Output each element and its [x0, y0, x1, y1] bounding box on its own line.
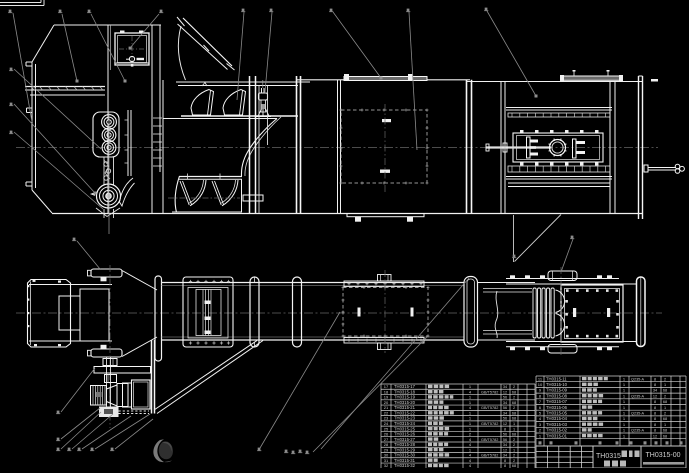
svg-text:2: 2: [513, 406, 515, 410]
svg-text:2: 2: [513, 454, 515, 458]
svg-text:68: 68: [663, 434, 667, 438]
svg-text:TH0315-06: TH0315-06: [546, 405, 568, 410]
svg-text:56: 56: [503, 396, 507, 400]
svg-text:22: 22: [384, 410, 389, 415]
svg-text:68: 68: [512, 411, 516, 415]
svg-text:TH0315-18: TH0315-18: [394, 389, 416, 394]
svg-text:TH0315-29: TH0315-29: [394, 447, 416, 452]
svg-text:2: 2: [513, 385, 515, 389]
svg-text:TH0315-07: TH0315-07: [546, 399, 568, 404]
svg-text:26: 26: [384, 432, 389, 437]
svg-text:8: 8: [654, 383, 656, 387]
svg-text:18: 18: [384, 389, 389, 394]
svg-text:68: 68: [663, 400, 667, 404]
svg-text:8: 8: [504, 464, 506, 468]
svg-text:TH0315-26: TH0315-26: [394, 432, 416, 437]
svg-text:21: 21: [384, 405, 389, 410]
svg-text:68: 68: [512, 401, 516, 405]
svg-text:68: 68: [512, 433, 516, 437]
svg-text:8: 8: [654, 417, 656, 421]
svg-text:12: 12: [653, 394, 657, 398]
svg-text:1: 1: [664, 406, 666, 410]
svg-text:34: 34: [503, 411, 507, 415]
svg-text:56: 56: [503, 417, 507, 421]
svg-text:TH0315-02: TH0315-02: [546, 428, 568, 433]
svg-text:56: 56: [503, 438, 507, 442]
svg-text:68: 68: [512, 417, 516, 421]
svg-text:TH0315-28: TH0315-28: [394, 442, 416, 447]
svg-text:TH0315-31: TH0315-31: [394, 458, 416, 463]
svg-text:TH0315-24: TH0315-24: [394, 421, 416, 426]
svg-text:TH0315-27: TH0315-27: [394, 437, 416, 442]
svg-text:Q235-A: Q235-A: [631, 394, 645, 398]
svg-text:68: 68: [512, 390, 516, 394]
svg-text:GB/T5782: GB/T5782: [481, 454, 498, 458]
svg-text:56: 56: [503, 406, 507, 410]
svg-text:2: 2: [664, 377, 666, 381]
svg-text:56: 56: [503, 433, 507, 437]
svg-text:1: 1: [664, 383, 666, 387]
svg-text:30: 30: [384, 453, 389, 458]
svg-text:8: 8: [654, 400, 656, 404]
svg-text:68: 68: [663, 417, 667, 421]
svg-text:12: 12: [503, 422, 507, 426]
svg-text:8: 8: [654, 429, 656, 433]
svg-text:8: 8: [504, 427, 506, 431]
svg-text:2: 2: [513, 443, 515, 447]
svg-text:TH0315-17: TH0315-17: [394, 384, 416, 389]
svg-text:17: 17: [384, 384, 389, 389]
svg-text:Q235-A: Q235-A: [631, 412, 645, 416]
svg-text:TH0315-23: TH0315-23: [394, 416, 416, 421]
svg-text:TH0315-20: TH0315-20: [394, 400, 416, 405]
svg-text:2: 2: [664, 412, 666, 416]
svg-text:34: 34: [503, 385, 507, 389]
svg-text:34: 34: [503, 443, 507, 447]
svg-text:8: 8: [504, 459, 506, 463]
svg-text:TH0315-09: TH0315-09: [546, 388, 568, 393]
svg-text:68: 68: [663, 429, 667, 433]
svg-text:34: 34: [503, 401, 507, 405]
svg-text:TH0315: TH0315: [596, 453, 621, 460]
svg-text:68: 68: [512, 464, 516, 468]
svg-text:8: 8: [654, 412, 656, 416]
svg-text:TH0315-30: TH0315-30: [394, 453, 416, 458]
svg-text:TH0315-00: TH0315-00: [645, 452, 680, 459]
svg-text:28: 28: [384, 442, 389, 447]
svg-text:TH0315-19: TH0315-19: [394, 395, 416, 400]
svg-text:12: 12: [503, 448, 507, 452]
svg-text:TH0315-05: TH0315-05: [546, 411, 568, 416]
svg-text:8: 8: [654, 406, 656, 410]
svg-text:24: 24: [384, 421, 389, 426]
svg-text:2: 2: [513, 396, 515, 400]
svg-text:10: 10: [538, 382, 543, 387]
svg-text:1: 1: [513, 448, 515, 452]
svg-text:12: 12: [503, 390, 507, 394]
svg-text:1: 1: [664, 423, 666, 427]
svg-text:GB/T5782: GB/T5782: [481, 390, 498, 394]
svg-text:20: 20: [384, 400, 389, 405]
svg-text:34: 34: [653, 389, 657, 393]
svg-text:TH0315-01: TH0315-01: [546, 433, 568, 438]
svg-text:TH0315-11: TH0315-11: [546, 376, 567, 381]
svg-text:1: 1: [513, 422, 515, 426]
svg-text:TH0315-10: TH0315-10: [546, 382, 568, 387]
svg-text:8: 8: [654, 423, 656, 427]
svg-text:GB/T5782: GB/T5782: [481, 406, 498, 410]
svg-text:TH0315-03: TH0315-03: [546, 422, 568, 427]
svg-text:GB/T5782: GB/T5782: [481, 438, 498, 442]
svg-text:TH0315-08: TH0315-08: [546, 393, 568, 398]
svg-text:31: 31: [384, 458, 389, 463]
svg-text:25: 25: [384, 426, 389, 431]
svg-text:32: 32: [384, 463, 389, 468]
svg-text:TH0315-22: TH0315-22: [394, 410, 416, 415]
svg-text:2: 2: [513, 438, 515, 442]
svg-text:68: 68: [663, 389, 667, 393]
svg-text:TH0315-21: TH0315-21: [394, 405, 416, 410]
svg-text:TH0315-25: TH0315-25: [394, 426, 416, 431]
svg-text:23: 23: [384, 416, 389, 421]
svg-text:TH0315-32: TH0315-32: [394, 463, 416, 468]
svg-text:Q235-A: Q235-A: [631, 429, 645, 433]
svg-text:2: 2: [513, 459, 515, 463]
svg-text:TH0315-04: TH0315-04: [546, 416, 568, 421]
svg-text:8: 8: [654, 377, 656, 381]
svg-text:1: 1: [513, 427, 515, 431]
svg-text:12: 12: [653, 434, 657, 438]
svg-text:29: 29: [384, 447, 389, 452]
svg-text:19: 19: [384, 395, 389, 400]
svg-text:27: 27: [384, 437, 389, 442]
svg-text:2: 2: [664, 394, 666, 398]
svg-text:GB/T5782: GB/T5782: [481, 422, 498, 426]
svg-text:Q235-A: Q235-A: [631, 377, 645, 381]
svg-text:34: 34: [503, 454, 507, 458]
